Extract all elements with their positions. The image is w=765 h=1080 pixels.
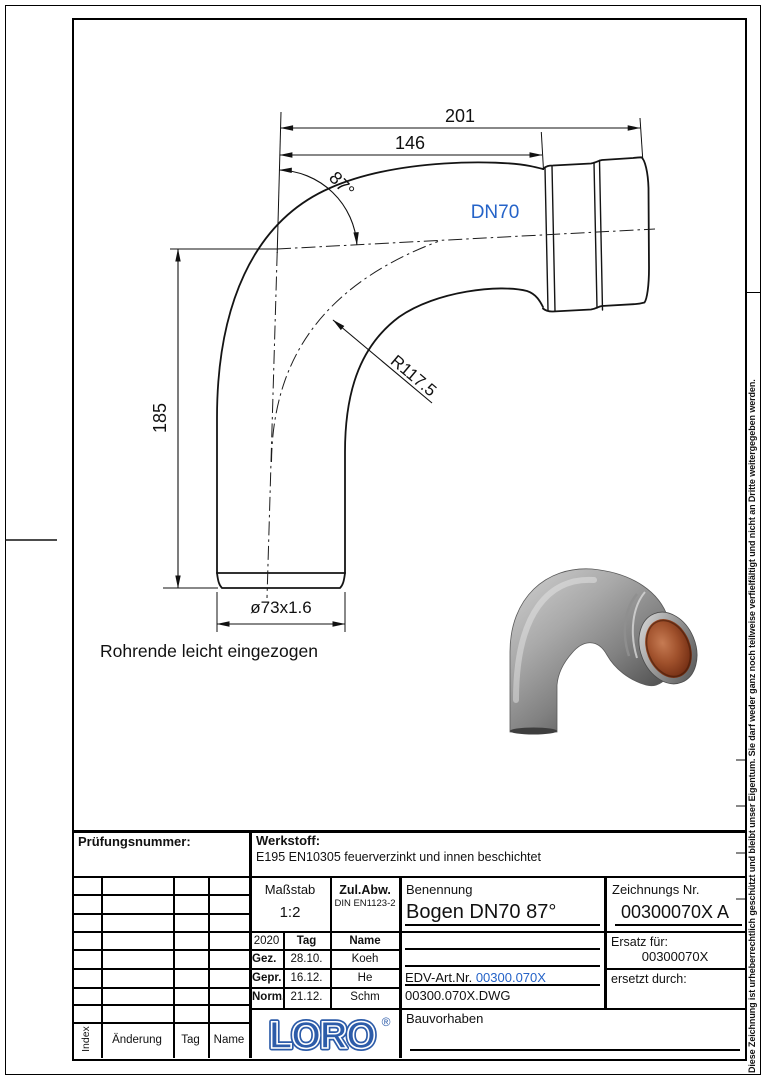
pipe-elbow-outline [217,157,649,588]
werkstoff-label: Werkstoff: [256,834,320,849]
edv-art-nr-value: 00300.070X [476,970,546,985]
pipe-end-note: Rohrende leicht eingezogen [100,641,318,661]
dim-total-length: 201 [445,106,475,126]
revision-tag-label: Tag [173,1034,208,1047]
edv-art-nr-label: EDV-Art.Nr. [405,970,472,985]
registered-mark-icon: ® [382,1015,391,1029]
approval-row-role: Gepr. [252,972,281,985]
approval-row-name: He [330,972,400,985]
approval-row-date: 28.10. [283,953,330,966]
massstab-value: 1:2 [250,904,330,921]
approval-row-name: Schm [330,991,400,1004]
approval-name-header: Name [330,935,400,948]
nominal-size-label: DN70 [471,202,520,223]
elbow-3d-render [510,569,707,735]
approval-year: 2020 [250,935,283,948]
pruefungsnummer-label: Prüfungsnummer: [78,835,191,850]
approval-row-name: Koeh [330,953,400,966]
dim-bend-radius: R117.5 [387,351,440,400]
zeichnungs-nr-value: 00300070X A [608,902,742,923]
benennung-label: Benennung [406,883,473,898]
zul-abw-value: DIN EN1123-2 [330,899,400,910]
dim-leg-height: 185 [150,403,170,433]
approval-row-date: 16.12. [283,972,330,985]
benennung-value: Bogen DN70 87° [406,901,556,924]
zeichnungs-nr-label: Zeichnungs Nr. [612,883,699,898]
werkstoff-value: E195 EN10305 feuerverzinkt und innen bes… [256,850,541,864]
svg-text:LORO: LORO [269,1015,375,1056]
approval-row-date: 21.12. [283,991,330,1004]
dim-pipe-od: ø73x1.6 [250,598,311,617]
ersatz-fuer-label: Ersatz für: [611,935,668,949]
revision-index-label: Index [80,1015,92,1063]
drawing-sheet: 201 146 87° 185 ø73x1.6 R117.5 DN70 Rohr… [0,0,765,1080]
approval-tag-header: Tag [283,935,330,948]
massstab-label: Maßstab [250,883,330,898]
approval-row-role: Gez. [252,953,276,966]
bauvorhaben-label: Bauvorhaben [406,1012,483,1027]
revision-aenderung-label: Änderung [101,1034,173,1047]
ersetzt-durch-label: ersetzt durch: [611,972,687,986]
copyright-notice: Diese Zeichnung ist urheberrechtlich ges… [747,293,760,1073]
approval-row-role: Norm. [252,991,285,1004]
ersatz-fuer-value: 00300070X [605,950,745,965]
zul-abw-label: Zul.Abw. [330,883,400,897]
loro-logo: LORO LORO ® [262,1012,394,1056]
dim-angle: 87° [325,168,358,201]
dwg-file: 00300.070X.DWG [405,989,511,1004]
revision-name-label: Name [208,1034,250,1047]
dim-tangent-length: 146 [395,133,425,153]
